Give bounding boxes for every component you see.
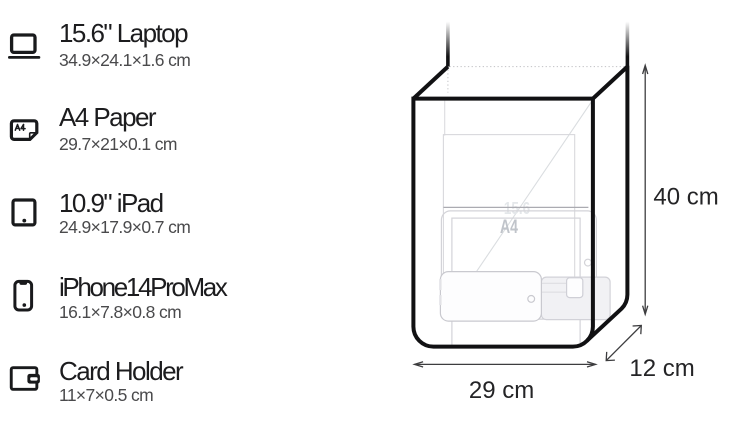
svg-text:12 cm: 12 cm (629, 355, 694, 382)
svg-text:A4: A4 (500, 216, 519, 238)
svg-text:40 cm: 40 cm (653, 184, 718, 211)
svg-text:29 cm: 29 cm (469, 377, 534, 404)
